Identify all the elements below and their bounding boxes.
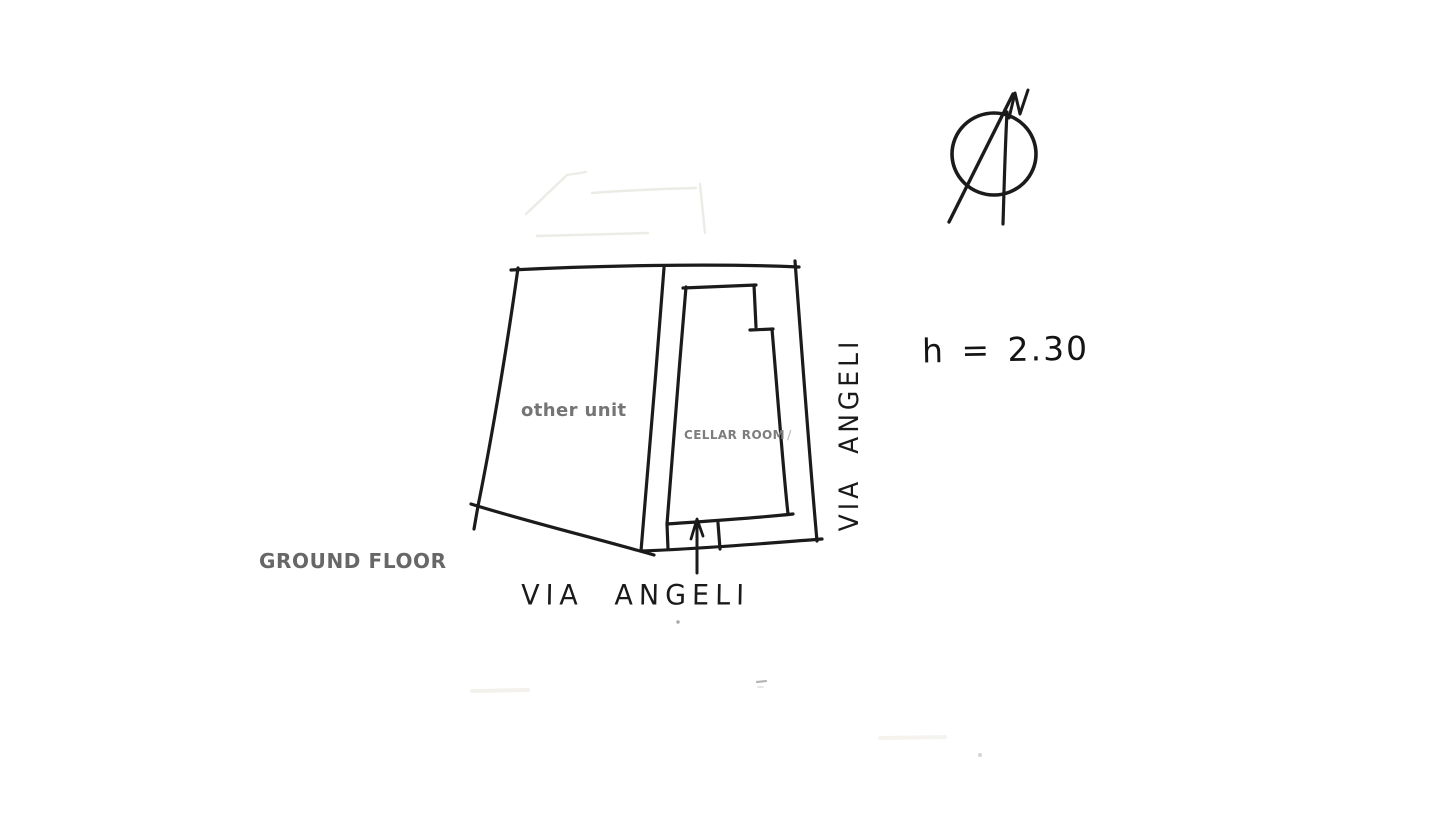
smudge (880, 737, 945, 738)
outer-wall-top (511, 265, 799, 270)
cellar-wall-bottom (667, 514, 793, 524)
cellar-room-label-suffix: / (787, 428, 792, 442)
height-annotation: h = 2.30 (922, 329, 1090, 371)
stray-dot (978, 753, 982, 757)
ghost-sketch-lines (526, 172, 705, 236)
ground-floor-label: GROUND FLOOR (259, 549, 447, 573)
smudge (472, 690, 528, 691)
cellar-room-label: CELLAR ROOM/ (684, 428, 792, 442)
compass-circle (952, 113, 1036, 195)
ghost-line (526, 175, 567, 214)
cellar-wall-left (667, 287, 686, 549)
outer-wall-right (795, 261, 817, 541)
ghost-line (567, 172, 586, 175)
street-label-via-angeli-bottom: VIA ANGELI (521, 579, 751, 611)
partition-wall (641, 268, 664, 551)
floor-plan-drawing (0, 0, 1452, 817)
compass-vertical-line (1003, 112, 1007, 224)
street-label-via-angeli-right: VIA ANGELI (834, 325, 864, 545)
stray-dot (676, 620, 679, 623)
ghost-line (592, 188, 696, 193)
ghost-line (537, 233, 648, 236)
outer-wall-left (474, 268, 518, 529)
cellar-wall-top (683, 285, 756, 288)
cellar-wall-right (772, 329, 788, 514)
stray-marks (472, 620, 982, 757)
cellar-step-vertical (754, 285, 756, 327)
cellar-room-label-text: CELLAR ROOM (684, 428, 785, 442)
outer-wall-bottom-slant (471, 504, 654, 555)
ghost-line (700, 184, 705, 233)
stray-mark (757, 681, 766, 682)
cellar-step-horizontal (750, 329, 773, 330)
door-jamb (718, 523, 720, 549)
floor-plan-canvas: other unit CELLAR ROOM/ GROUND FLOOR VIA… (0, 0, 1452, 817)
other-unit-label: other unit (521, 400, 627, 421)
